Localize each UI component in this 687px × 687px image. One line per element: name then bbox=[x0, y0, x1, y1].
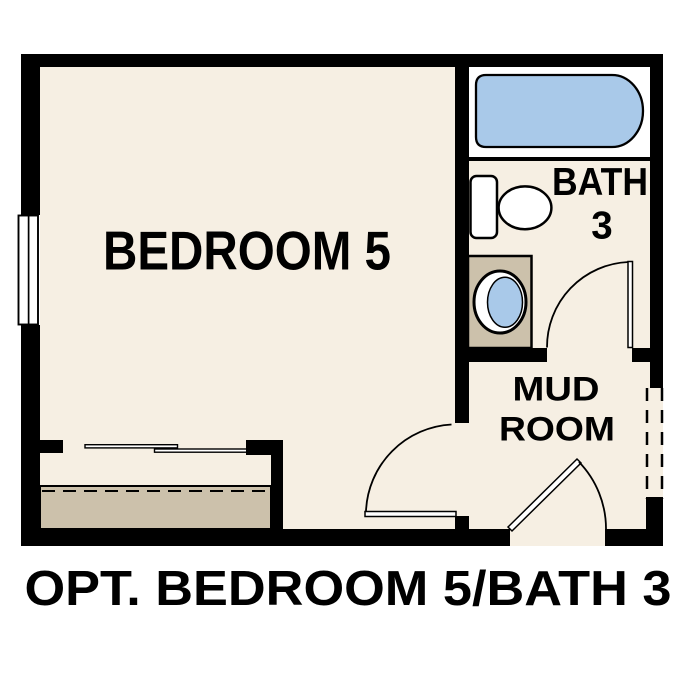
svg-text:ROOM: ROOM bbox=[499, 410, 615, 448]
svg-text:MUD: MUD bbox=[513, 371, 600, 409]
svg-text:BEDROOM 5: BEDROOM 5 bbox=[103, 220, 391, 282]
svg-text:OPT. BEDROOM 5/BATH 3: OPT. BEDROOM 5/BATH 3 bbox=[25, 562, 672, 616]
svg-text:3: 3 bbox=[591, 205, 612, 248]
svg-text:BATH: BATH bbox=[552, 161, 648, 204]
